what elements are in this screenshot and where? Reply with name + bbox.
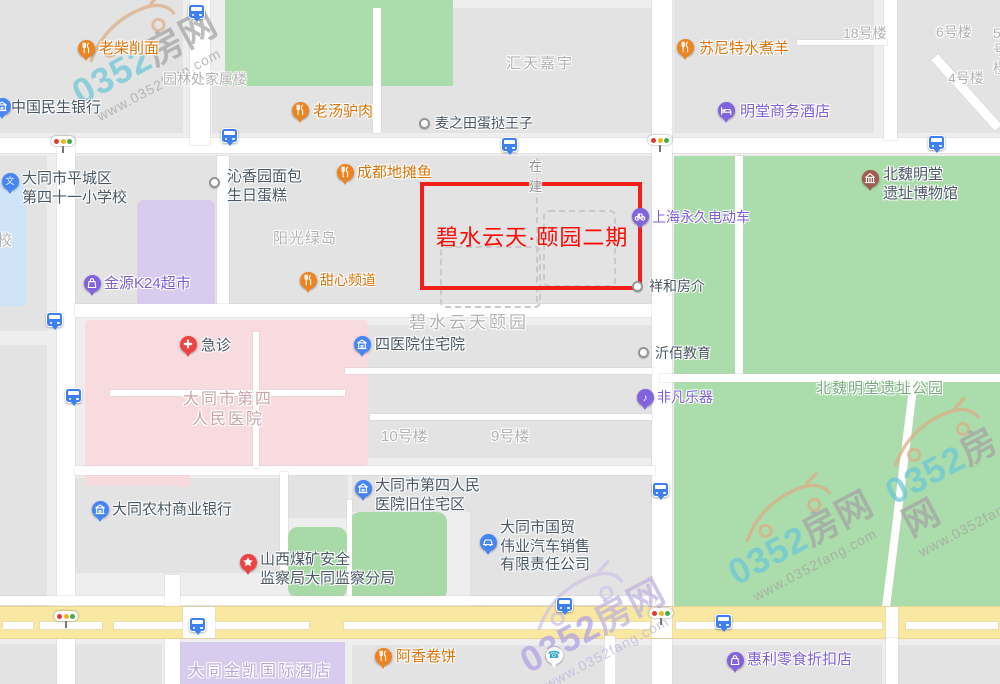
poi-dot-icon[interactable] — [209, 177, 220, 188]
restaurant-pin-icon[interactable] — [677, 39, 694, 56]
supermarket-pin-icon[interactable] — [84, 275, 101, 292]
city-block — [896, 645, 1000, 684]
area-label-jinkai-hotel[interactable]: 大同金凯国际酒店 — [188, 662, 332, 682]
building-label-10[interactable]: 10号楼 — [381, 428, 428, 447]
area-label-bishuiyuntian-yiyuan[interactable]: 碧水云天颐园 — [409, 312, 529, 333]
road — [75, 304, 665, 317]
pin-tail — [296, 117, 304, 123]
svg-text:文: 文 — [5, 175, 14, 186]
poi-label-jinyuan-k24[interactable]: 金源K24超市 — [104, 275, 191, 294]
poi-label-axiang-wrap[interactable]: 阿香卷饼 — [396, 648, 456, 667]
poi-label-feifan-instruments[interactable]: 非凡乐器 — [657, 389, 713, 406]
road — [652, 0, 672, 684]
bank-pin-icon[interactable] — [92, 501, 109, 518]
pin-tail — [681, 54, 689, 60]
auto-dealer-pin-icon[interactable] — [480, 534, 497, 551]
road — [676, 622, 882, 629]
residence-pin-icon[interactable] — [355, 480, 372, 497]
pin-tail — [866, 185, 874, 191]
building-label-9[interactable]: 9号楼 — [491, 428, 529, 447]
bus-stop-icon[interactable] — [501, 137, 518, 152]
poi-label-old-residence[interactable]: 大同市第四人民 医院旧住宅区 — [375, 477, 480, 514]
pin-tail — [484, 549, 492, 555]
restaurant-pin-icon[interactable] — [337, 164, 354, 181]
pin-tail — [551, 663, 557, 668]
poi-label-minsheng-bank[interactable]: 中国民生银行 — [11, 99, 101, 118]
highlight-label: 碧水云天·颐园二期 — [436, 224, 628, 251]
poi-label-coal-bureau[interactable]: 山西煤矿安全 监察局大同监察分局 — [260, 551, 395, 588]
map-canvas[interactable]: 0352房网www.0352fang.com 0352房网www.0352fan… — [0, 0, 1000, 684]
telecom-pin-icon[interactable]: ☎ — [546, 647, 563, 664]
road — [373, 8, 381, 133]
poi-label-qinxiangyuan-bakery[interactable]: 沁香园面包 生日蛋糕 — [227, 168, 302, 205]
pin-tail — [304, 287, 312, 293]
poi-label-laochai-noodles[interactable]: 老柴削面 — [99, 40, 159, 59]
government-pin-icon[interactable] — [240, 554, 257, 571]
restaurant-pin-icon[interactable] — [78, 40, 95, 57]
road — [884, 0, 897, 140]
road — [3, 622, 33, 629]
traffic-light-icon — [54, 611, 78, 621]
bus-stop-icon[interactable] — [221, 128, 238, 143]
bus-stop-icon[interactable] — [65, 388, 82, 403]
building-label-6[interactable]: 6号楼 — [936, 24, 972, 41]
city-block — [0, 644, 162, 684]
area-label-no4-hospital[interactable]: 大同市第四 人民医院 — [178, 390, 278, 430]
svg-text:♪: ♪ — [643, 393, 648, 403]
road — [40, 622, 102, 629]
road — [370, 414, 652, 420]
building-label-4[interactable]: 4号楼 — [948, 70, 984, 87]
area-label-yuanlinchu[interactable]: 园林处家属楼 — [163, 71, 247, 88]
bus-stop-icon[interactable] — [189, 617, 206, 632]
area-label-mingtang-park[interactable]: 北魏明堂遗址公园 — [816, 380, 944, 399]
pin-tail — [731, 667, 739, 673]
green-area — [225, 0, 453, 86]
road — [344, 622, 650, 629]
emergency-pin-icon[interactable] — [180, 336, 197, 353]
pin-tail — [722, 117, 730, 123]
school-pin-icon[interactable]: 文 — [2, 173, 19, 190]
area-label-yangguanglvdao[interactable]: 阳光绿岛 — [273, 230, 337, 249]
pin-tail — [341, 179, 349, 185]
poi-label-no4-hospital-residence[interactable]: 四医院住宅院 — [375, 336, 465, 355]
poi-dot-icon[interactable] — [638, 347, 649, 358]
restaurant-pin-icon[interactable] — [300, 272, 317, 289]
area-label-huitianjiayu[interactable]: 汇天嘉宇 — [506, 55, 574, 74]
road — [906, 622, 998, 629]
building-label-18[interactable]: 18号楼 — [843, 25, 887, 42]
area-label-partial[interactable]: 校 — [0, 232, 12, 251]
poi-label-emergency[interactable]: 急诊 — [201, 337, 231, 356]
bicycle-pin-icon[interactable] — [632, 208, 649, 225]
road — [605, 636, 615, 684]
bus-stop-icon[interactable] — [928, 135, 945, 150]
pin-tail — [244, 569, 252, 575]
poi-label-sunite-lamb[interactable]: 苏尼特水煮羊 — [699, 40, 789, 59]
poi-label-mingtang-hotel[interactable]: 明堂商务酒店 — [740, 103, 830, 122]
residence-pin-icon[interactable] — [354, 336, 371, 353]
road — [886, 638, 898, 684]
road — [0, 138, 1000, 153]
poi-label-maizhitian[interactable]: 麦之田蛋挞王子 — [435, 115, 533, 132]
bus-stop-icon[interactable] — [652, 482, 669, 497]
restaurant-pin-icon[interactable] — [375, 648, 392, 665]
pin-tail — [358, 351, 366, 357]
traffic-light-icon — [648, 135, 672, 145]
pin-tail — [379, 663, 387, 669]
poi-label-yibai-education[interactable]: 沂佰教育 — [655, 345, 711, 362]
poi-label-tianxin-channel[interactable]: 甜心频道 — [320, 272, 376, 289]
city-block — [0, 345, 47, 607]
poi-dot-icon[interactable] — [632, 281, 643, 292]
building-label-5[interactable]: 5号楼 — [993, 25, 1000, 77]
pin-tail — [641, 404, 649, 410]
poi-label-no41-school[interactable]: 大同市平城区 第四十一小学校 — [22, 170, 127, 207]
traffic-light-icon — [649, 608, 673, 618]
poi-label-rural-bank[interactable]: 大同农村商业银行 — [112, 501, 232, 520]
construction-label: 在 建 — [529, 157, 542, 197]
bus-stop-icon[interactable] — [46, 312, 63, 327]
bus-stop-icon[interactable] — [715, 614, 732, 629]
poi-label-yongjiu-ebike[interactable]: 上海永久电动车 — [652, 209, 750, 226]
poi-label-laotang-donkey[interactable]: 老汤驴肉 — [313, 103, 373, 122]
hotel-pin-icon[interactable] — [718, 102, 735, 119]
poi-label-guomao-auto[interactable]: 大同市国贸 伟业汽车销售 有限责任公司 — [500, 519, 590, 575]
pin-tail — [96, 516, 104, 522]
bus-stop-icon[interactable] — [188, 4, 205, 19]
pin-tail — [88, 290, 96, 296]
road — [886, 607, 898, 638]
poi-dot-icon[interactable] — [419, 118, 430, 129]
poi-label-xianghe-realty[interactable]: 祥和房介 — [649, 278, 705, 295]
poi-label-huili-snacks[interactable]: 惠利零食折扣店 — [747, 651, 852, 670]
traffic-light-icon — [51, 136, 75, 146]
snack-shop-pin-icon[interactable] — [727, 652, 744, 669]
pin-tail — [0, 113, 6, 119]
poi-label-mingtang-museum[interactable]: 北魏明堂 遗址博物馆 — [883, 166, 958, 203]
pin-tail — [82, 55, 90, 61]
road — [735, 156, 743, 380]
pin-tail — [359, 495, 367, 501]
poi-label-chengdu-fish[interactable]: 成都地摊鱼 — [357, 164, 432, 183]
road — [75, 466, 655, 475]
music-pin-icon[interactable]: ♪ — [637, 389, 654, 406]
restaurant-pin-icon[interactable] — [292, 102, 309, 119]
bus-stop-icon[interactable] — [556, 597, 573, 612]
pin-tail — [184, 351, 192, 357]
road — [345, 368, 652, 374]
pin-tail — [636, 223, 644, 229]
museum-pin-icon[interactable] — [862, 170, 879, 187]
bank-pin-icon[interactable] — [0, 98, 11, 115]
city-block — [288, 470, 348, 518]
pin-tail — [6, 188, 14, 194]
